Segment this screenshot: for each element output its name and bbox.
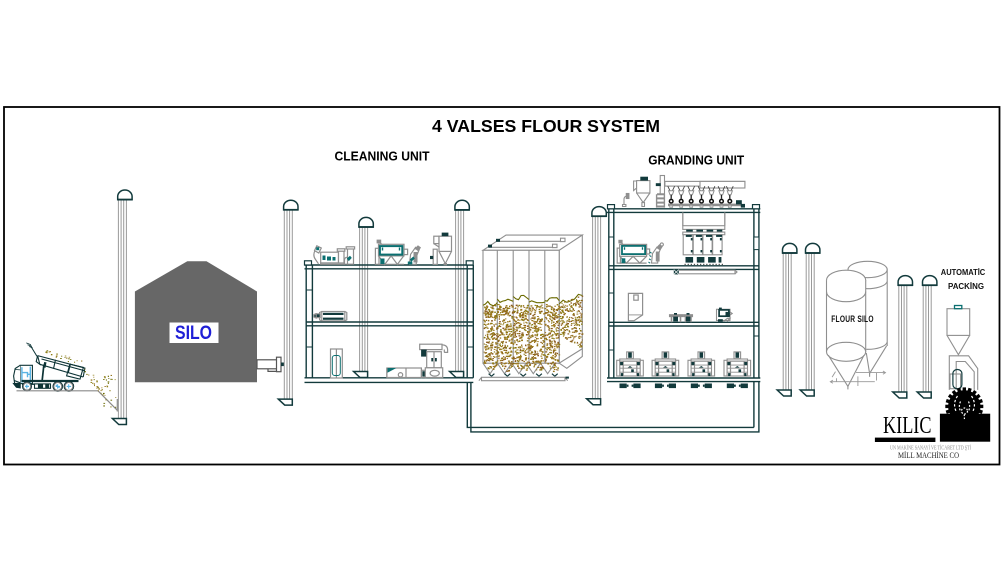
svg-text:4 VALSES FLOUR SYSTEM: 4 VALSES FLOUR SYSTEM (432, 116, 660, 136)
svg-text:FLOUR SILO: FLOUR SILO (831, 314, 874, 324)
svg-text:KILIC: KILIC (883, 412, 932, 439)
svg-text:PACKİNG: PACKİNG (948, 282, 984, 291)
svg-text:CLEANING UNIT: CLEANING UNIT (335, 150, 430, 164)
svg-text:GRANDING UNIT: GRANDING UNIT (648, 153, 744, 167)
svg-text:SILO: SILO (175, 322, 212, 344)
svg-text:AUTOMATİC: AUTOMATİC (941, 268, 986, 277)
svg-text:MİLL MACHİNE CO: MİLL MACHİNE CO (898, 450, 959, 460)
